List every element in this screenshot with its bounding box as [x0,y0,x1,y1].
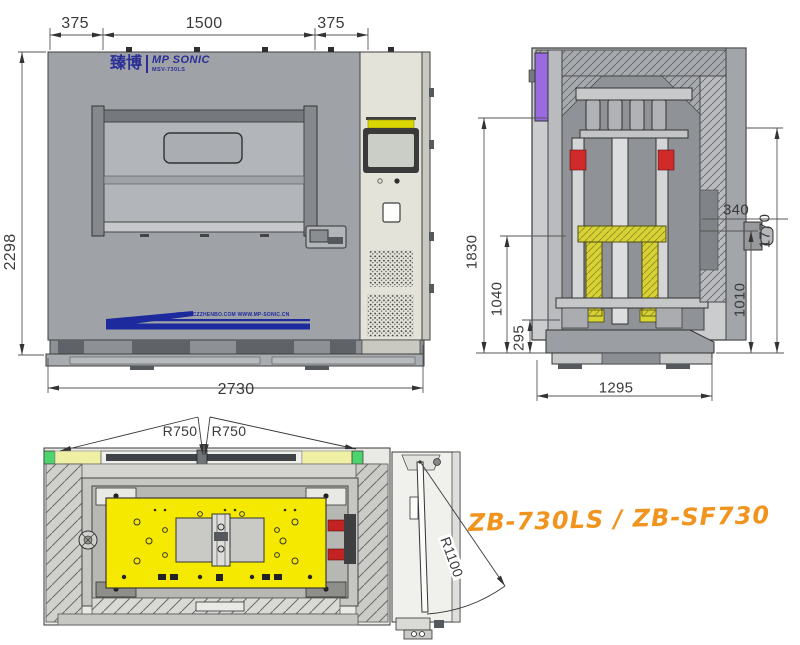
screen-yellow-cap [368,120,414,128]
purple-rail [535,53,548,121]
dim-295: 295 [512,325,527,351]
drawing-graphics [0,0,800,645]
top-hinge-nubs [126,47,394,52]
indicator-button [394,178,399,183]
red-block-right [658,150,674,170]
machine-drawing-sheet: 375 1500 375 2298 2730 1830 1040 295 340… [0,0,800,645]
top-edge-strips [44,450,363,466]
lower-platform [556,298,708,308]
brand-logo-cn: 臻博 [110,55,142,71]
banner-website-text: WWW.CZZHENBO.COM WWW.MP-SONIC.CN [177,312,290,318]
door-rail-left [92,106,104,236]
front-door [104,110,304,237]
dim-1010: 1010 [733,283,748,318]
dim-375-left: 375 [61,16,89,32]
dim-1295: 1295 [599,381,634,396]
work-table-yellow [106,498,326,588]
bottom-sill [58,598,358,625]
brand-logo: 臻博 MP SONIC MSV-730LS [110,55,210,73]
dim-340: 340 [723,203,749,218]
brand-logo-model: MSV-730LS [152,67,210,73]
dim-r750-right: R750 [212,424,247,438]
door-window [164,133,242,163]
right-hardware [344,514,356,564]
door-handle [306,226,346,248]
brand-logo-divider [146,55,148,73]
top-view-drawing [44,417,505,639]
control-column [360,52,434,340]
dim-1770: 1770 [758,214,773,249]
brand-logo-name: MP SONIC [152,55,210,66]
dim-1830: 1830 [465,235,480,270]
door-rail-right [304,106,317,236]
vent-grille-upper [369,250,413,287]
left-knob [79,531,97,549]
dim-2298: 2298 [3,234,19,271]
panel-switch [383,203,400,222]
indicator-light [378,179,382,183]
dim-375-right: 375 [317,16,345,32]
dim-1500: 1500 [186,16,223,32]
front-base [46,340,424,370]
vent-grille-lower [367,294,414,337]
dim-1040: 1040 [490,282,505,317]
hmi-screen [368,134,414,167]
dim-r750-left: R750 [163,424,198,438]
red-block-left [570,150,586,170]
dim-2730: 2730 [218,382,255,398]
front-view-drawing [18,28,434,393]
side-base [546,330,714,369]
side-left-column [548,50,562,340]
